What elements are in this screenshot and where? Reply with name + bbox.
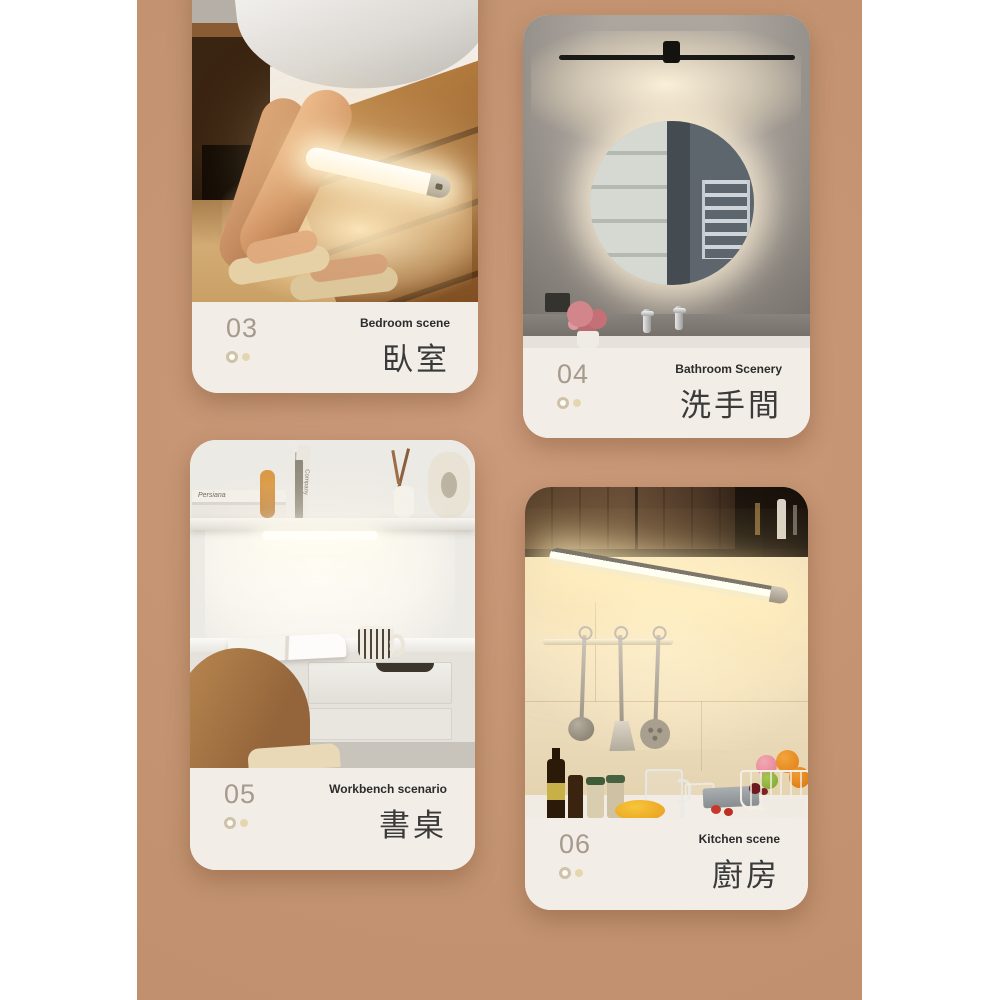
scene-label-zh: 臥室 xyxy=(360,334,450,379)
scene-label-zh: 洗手間 xyxy=(675,380,782,425)
scene-label-en: Workbench scenario xyxy=(329,782,447,796)
wall-socket xyxy=(545,293,570,312)
mango xyxy=(615,800,665,818)
utensil-rail xyxy=(543,639,673,645)
dot-ring-icon xyxy=(559,867,571,879)
scene-label-zh: 廚房 xyxy=(699,850,780,895)
bathroom-caption: 04 Bathroom Scenery 洗手間 xyxy=(523,348,810,438)
spice-jar xyxy=(587,783,604,818)
card-bedroom: 03 Bedroom scene 臥室 xyxy=(192,0,478,393)
standing-books: Company xyxy=(295,442,397,518)
book-spine: Persiana xyxy=(198,492,226,499)
card-number: 04 xyxy=(557,360,589,390)
wall-lamp-mount xyxy=(663,41,680,63)
wine-bottle xyxy=(777,499,786,539)
tile-grout-line xyxy=(525,701,808,702)
round-mirror xyxy=(590,121,754,285)
dot-fill-icon xyxy=(573,399,581,407)
workbench-caption: 05 Workbench scenario 書桌 xyxy=(190,768,475,870)
sauce-bottle xyxy=(568,775,583,818)
sculptural-vase xyxy=(428,452,470,518)
faucet xyxy=(643,309,651,333)
towel-rack-reflection xyxy=(702,180,751,259)
striped-mug xyxy=(358,626,394,659)
scene-label-en: Kitchen scene xyxy=(699,832,780,846)
dot-ring-icon xyxy=(557,397,569,409)
mirror-reflection-divider xyxy=(667,121,690,285)
card-bathroom: 04 Bathroom Scenery 洗手間 xyxy=(523,15,810,438)
scene-label-en: Bathroom Scenery xyxy=(675,362,782,376)
wall-shelf xyxy=(190,518,475,530)
sink-edge xyxy=(523,336,810,348)
dot-fill-icon xyxy=(240,819,248,827)
flower-vase xyxy=(577,331,599,348)
pagination-dots xyxy=(224,817,256,829)
scene-label-zh: 書桌 xyxy=(329,800,447,845)
scene-label-en: Bedroom scene xyxy=(360,316,450,330)
dot-fill-icon xyxy=(242,353,250,361)
led-light-bar xyxy=(262,531,378,540)
desk-drawer xyxy=(308,708,452,740)
kitchen-photo xyxy=(525,487,808,818)
glass-glint xyxy=(793,505,797,535)
glass-cabinet xyxy=(735,487,808,551)
dot-fill-icon xyxy=(575,869,583,877)
product-collage: 03 Bedroom scene 臥室 xyxy=(0,0,1000,1000)
small-vase xyxy=(394,486,414,518)
pagination-dots xyxy=(559,867,591,879)
bottle-glint xyxy=(755,503,760,535)
tomato xyxy=(724,808,733,816)
bathroom-photo xyxy=(523,15,810,348)
bedroom-caption: 03 Bedroom scene 臥室 xyxy=(192,302,478,393)
tomato xyxy=(711,805,721,814)
mirror-reflection-cabinet xyxy=(590,121,667,285)
tile-grout-line xyxy=(595,602,596,702)
amber-candlestick xyxy=(260,470,275,518)
workbench-photo: Persiana Company xyxy=(190,440,475,768)
bedroom-photo xyxy=(192,0,478,302)
drawer-handle xyxy=(376,663,434,672)
card-kitchen: 06 Kitchen scene 廚房 xyxy=(525,487,808,910)
pink-flowers xyxy=(567,301,593,327)
book-spine xyxy=(295,460,303,518)
sauce-bottle xyxy=(547,759,565,818)
dot-ring-icon xyxy=(226,351,238,363)
card-workbench: Persiana Company xyxy=(190,440,475,870)
tile-grout-line xyxy=(701,701,702,771)
pagination-dots xyxy=(226,351,258,363)
card-number: 06 xyxy=(559,830,591,860)
kitchen-caption: 06 Kitchen scene 廚房 xyxy=(525,818,808,910)
card-number: 05 xyxy=(224,780,256,810)
pagination-dots xyxy=(557,397,589,409)
card-number: 03 xyxy=(226,314,258,344)
faucet xyxy=(675,306,683,330)
dot-ring-icon xyxy=(224,817,236,829)
